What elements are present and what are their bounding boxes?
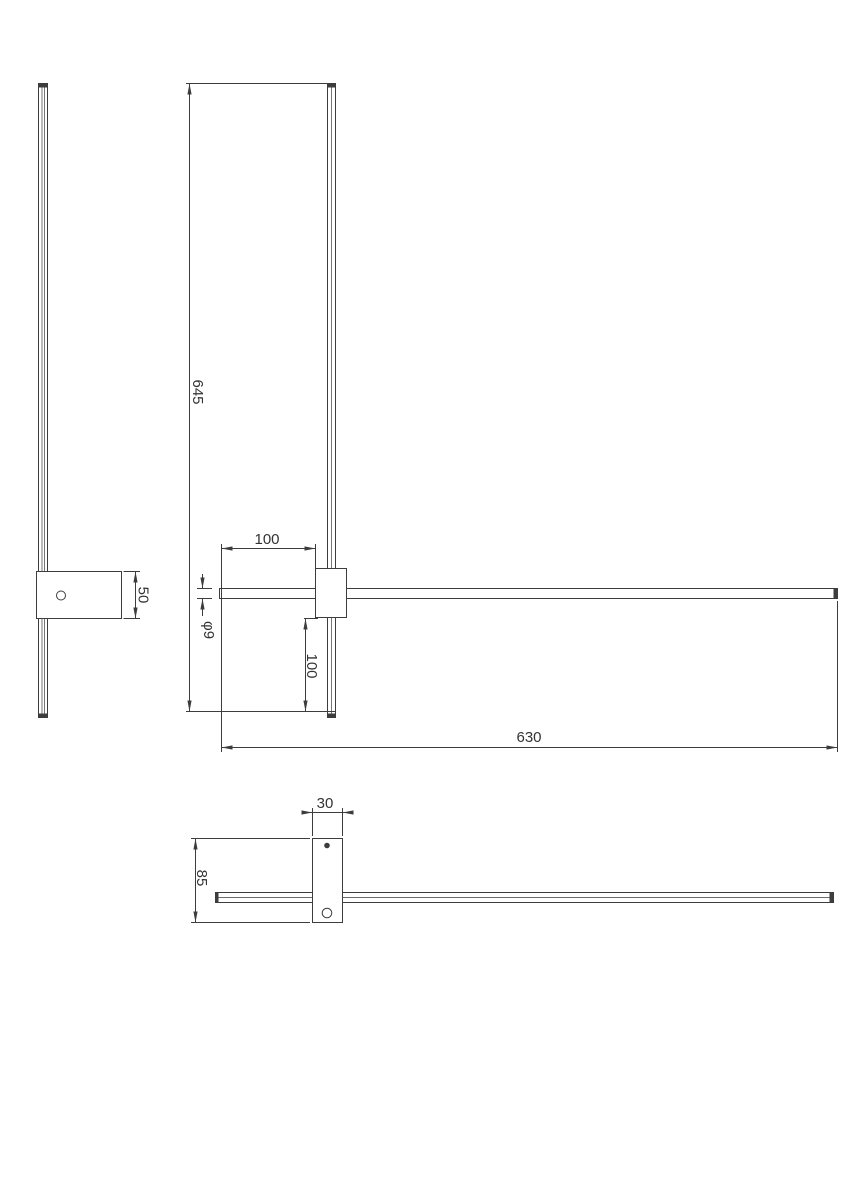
front-connector-block [316, 569, 347, 618]
dim-label-bracket-height: 50 [135, 587, 152, 604]
tube-end-cap [834, 589, 838, 599]
tube-end-cap [328, 84, 336, 88]
dim-label-left-offset: 100 [254, 531, 279, 548]
screw-dot [324, 843, 330, 849]
front-view: 645 100 φ9 100 630 [186, 84, 838, 753]
tube-end-cap [216, 893, 219, 903]
side-mounting-bracket [37, 572, 122, 619]
dim-label-bottom-offset: 100 [303, 653, 320, 678]
dim-label-tube-diameter: φ9 [200, 621, 217, 639]
dim-label-total-height: 645 [189, 379, 206, 404]
side-mounting-hole [57, 591, 66, 600]
dim-label-bracket-width: 30 [317, 795, 334, 812]
drawing-canvas: 50 645 100 φ9 100 [0, 0, 848, 1200]
side-view: 50 [37, 84, 152, 718]
tube-end-cap [328, 714, 336, 718]
bottom-view: 30 85 [191, 795, 834, 923]
dim-label-bracket-depth: 85 [193, 870, 210, 887]
tube-end-cap [830, 893, 834, 903]
tube-end-cap [39, 714, 48, 718]
tube-end-cap [39, 84, 48, 88]
side-lamp-tube [39, 84, 48, 718]
technical-drawing: 50 645 100 φ9 100 [0, 0, 848, 1200]
dim-label-total-width: 630 [516, 729, 541, 746]
front-horizontal-tube [220, 589, 838, 599]
bottom-mounting-hole [322, 908, 332, 918]
